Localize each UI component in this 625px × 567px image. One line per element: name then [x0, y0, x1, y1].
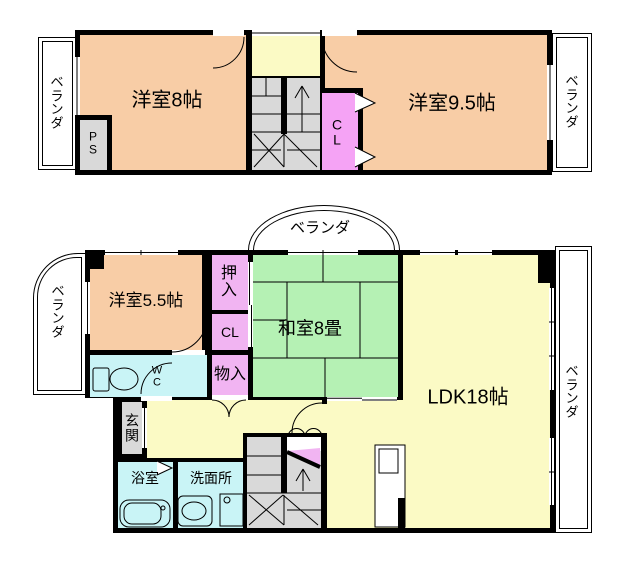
lower-wc: [90, 355, 207, 397]
wall-corner-post: [90, 255, 104, 269]
upper-veranda-left-label: ベランダ: [50, 76, 65, 131]
lower-bath-label: 浴室: [131, 470, 159, 486]
lower-wc-label: WC: [151, 365, 164, 388]
floor-plan: ベランダ 洋室8帖 PS CL 洋室9.5帖 ベランダ ベランダ ベランダ 洋室…: [0, 0, 625, 567]
upper-veranda-right-label: ベランダ: [565, 75, 580, 130]
lower-closet-label: CL: [221, 324, 239, 340]
upper-closet-label: CL: [329, 117, 345, 146]
lower-washroom-label: 洗面所: [190, 470, 232, 486]
lower-ldk-label: LDK18帖: [427, 387, 508, 410]
lower-oshiire-label: 押入: [220, 266, 238, 300]
lower-ldk-upper: [403, 255, 550, 400]
lower-veranda-left-label: ベランダ: [51, 285, 66, 340]
lower-ldk-main: [327, 400, 550, 528]
wall-corner-post: [538, 250, 550, 283]
exterior-notch: [85, 398, 113, 533]
lower-veranda-top-label: ベランダ: [290, 219, 350, 236]
lower-stairs: [247, 437, 321, 528]
upper-room-west8-label: 洋室8帖: [131, 90, 202, 113]
lower-genkan-label: 玄関: [124, 413, 140, 442]
upper-hall: [252, 35, 320, 76]
lower-corridor: [243, 400, 327, 433]
upper-stairs: [252, 77, 320, 170]
upper-ps-label: PS: [86, 130, 100, 155]
lower-room-west55-label: 洋室5.5帖: [109, 291, 184, 311]
lower-storage-label: 物入: [214, 366, 246, 384]
upper-room-west95-label: 洋室9.5帖: [408, 93, 496, 116]
lower-hall: [147, 400, 243, 458]
lower-washitsu-label: 和室8畳: [278, 319, 342, 340]
lower-veranda-right-label: ベランダ: [565, 365, 580, 420]
